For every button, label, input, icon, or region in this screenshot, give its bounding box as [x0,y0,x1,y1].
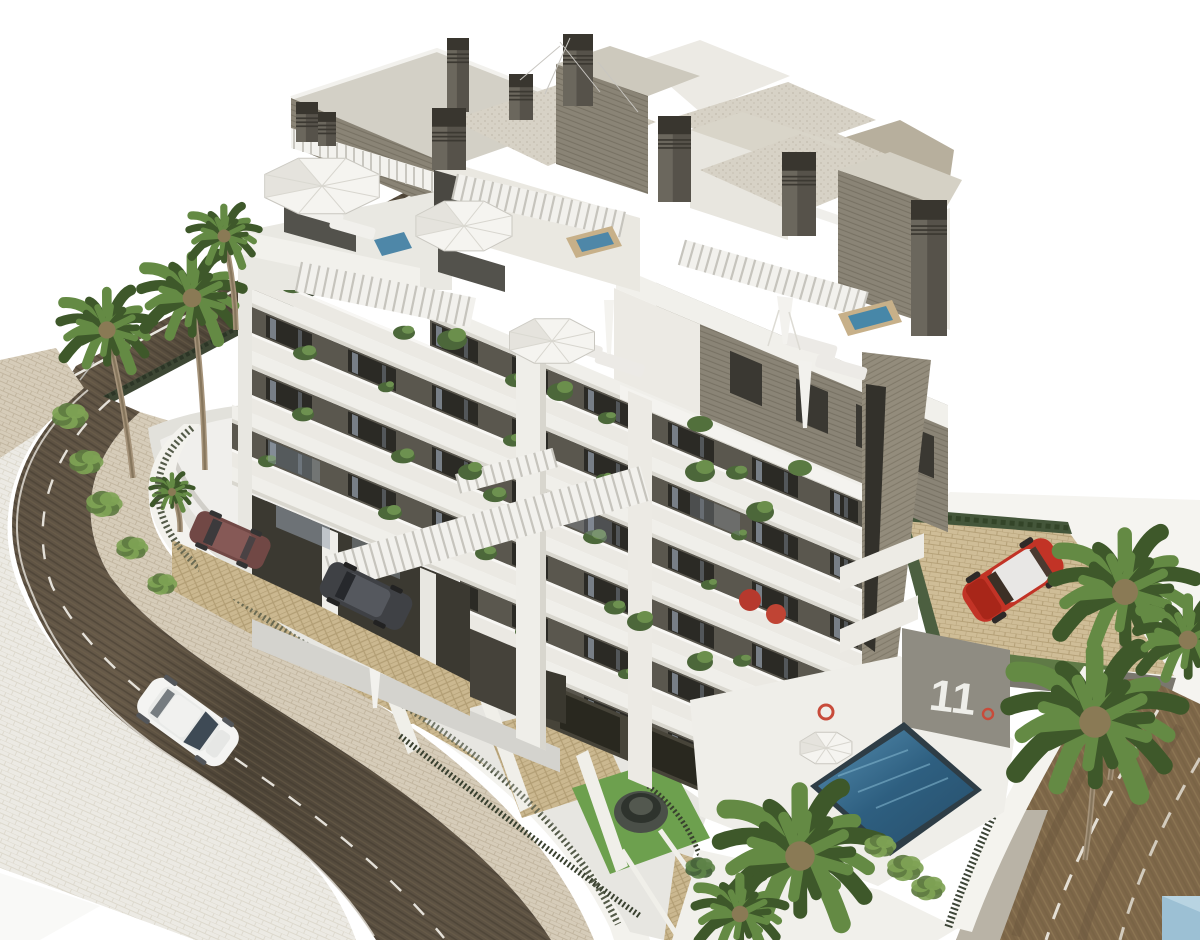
svg-text:11: 11 [927,671,979,725]
